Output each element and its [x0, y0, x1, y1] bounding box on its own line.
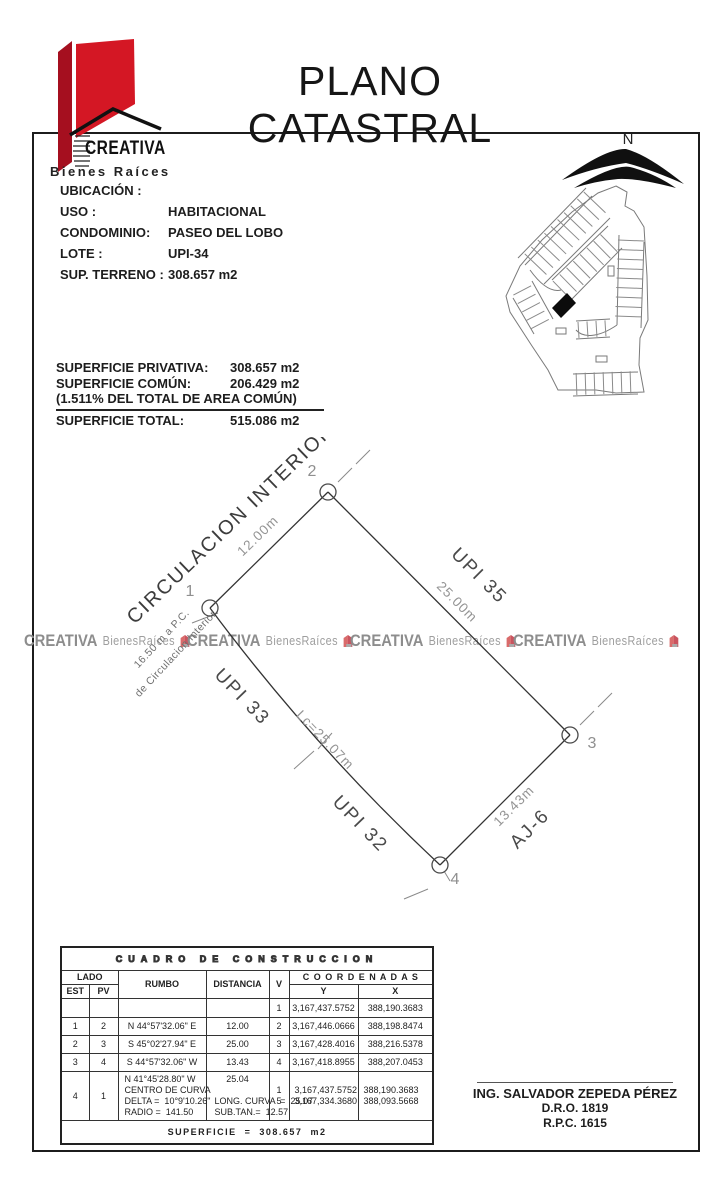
map-lot-ticks — [576, 382, 638, 384]
cell-x: 388,207.0453 — [358, 1054, 433, 1072]
dro-number: D.R.O. 1819 — [468, 1101, 682, 1116]
map-small-lot — [556, 328, 566, 334]
edge-1-2 — [210, 492, 328, 608]
leader-vertex-3 — [580, 693, 612, 725]
watermark-logo-icon — [668, 634, 678, 648]
map-strip-rails — [518, 188, 610, 284]
cell-y: 3,167,418.8955 — [289, 1054, 358, 1072]
property-info: UBICACIÓN : USO :HABITACIONAL CONDOMINIO… — [60, 183, 283, 282]
cell-distancia — [206, 999, 269, 1018]
field-label: USO : — [60, 204, 168, 219]
vertex-label-2: 2 — [308, 463, 317, 480]
cell-pv: 3 — [89, 1036, 118, 1054]
header-y: Y — [289, 985, 358, 999]
cell-y: 3,167,446.0666 — [289, 1018, 358, 1036]
field-label: CONDOMINIO: — [60, 225, 168, 240]
cell-distancia: 12.00 — [206, 1018, 269, 1036]
cell-rumbo: S 45°02'27.94" E — [118, 1036, 206, 1054]
cell-est — [61, 999, 89, 1018]
construction-table: CUADRO DE CONSTRUCCION LADO RUMBO DISTAN… — [60, 946, 434, 1145]
cell-rumbo — [118, 999, 206, 1018]
lot-plan-drawing: CIRCULACION INTERIOR 12.00m 2 1 UPI 35 2… — [128, 437, 640, 907]
cell-est: 2 — [61, 1036, 89, 1054]
watermark-brand: CREATIVA — [24, 631, 97, 651]
map-lot-ticks — [578, 328, 610, 330]
cell-pv — [89, 999, 118, 1018]
y-line: 3,167,437.5752 — [292, 1085, 356, 1096]
header-rumbo: RUMBO — [118, 971, 206, 999]
cell-est: 3 — [61, 1054, 89, 1072]
field-label: LOTE : — [60, 246, 168, 261]
surface-total-label: SUPERFICIE TOTAL: — [56, 413, 230, 429]
map-outer-boundary — [506, 186, 648, 393]
brand-tagline: Bienes Raíces — [50, 164, 171, 179]
cell-x: 388,190.3683 388,093.5668 — [358, 1072, 433, 1121]
north-label: N — [623, 131, 634, 148]
logo-left-panel — [58, 41, 72, 172]
map-highlighted-lot — [552, 293, 576, 318]
field-value: PASEO DEL LOBO — [168, 225, 283, 240]
table-curve-row: 4 1 N 41°45'28.80" W CENTRO DE CURVA DEL… — [61, 1072, 433, 1121]
table-row: 2 3 S 45°02'27.94" E 25.00 3 3,167,428.4… — [61, 1036, 433, 1054]
field-value — [168, 183, 283, 198]
surface-label: SUPERFICIE PRIVATIVA: — [56, 360, 230, 376]
x-line: 388,190.3683 — [361, 1085, 431, 1096]
edge-4-3 — [440, 735, 570, 865]
surface-summary: SUPERFICIE PRIVATIVA:308.657 m2 SUPERFIC… — [56, 360, 324, 428]
table-row: 3 4 S 44°57'32.06" W 13.43 4 3,167,418.8… — [61, 1054, 433, 1072]
header-v: V — [269, 971, 289, 999]
surface-note: (1.511% DEL TOTAL DE AREA COMÚN) — [56, 391, 324, 407]
logo-right-panel — [76, 39, 135, 138]
map-small-lot — [608, 266, 614, 276]
surface-value: 206.429 m2 — [230, 376, 324, 392]
subdivision-mini-map — [498, 180, 668, 400]
neighbor-upi32: UPI 32 — [328, 792, 392, 857]
rumbo-line: N 41°45'28.80" W — [121, 1074, 204, 1085]
cell-y: 3,167,428.4016 — [289, 1036, 358, 1054]
header-x: X — [358, 985, 433, 999]
map-small-lot — [596, 356, 607, 362]
signature-line — [477, 1082, 673, 1083]
field-value: 308.657 m2 — [168, 267, 283, 282]
table-footer-superficie: SUPERFICIE = 308.657 m2 — [61, 1121, 433, 1145]
rpc-number: R.P.C. 1615 — [468, 1116, 682, 1131]
cell-y: 3,167,437.5752 — [289, 999, 358, 1018]
field-value: UPI-34 — [168, 246, 283, 261]
cell-v: 2 — [269, 1018, 289, 1036]
cell-pv: 2 — [89, 1018, 118, 1036]
page-title: PLANO CATASTRAL — [170, 58, 570, 152]
x-line: 388,093.5668 — [361, 1096, 431, 1107]
neighbor-upi33: UPI 33 — [210, 665, 274, 730]
cell-rumbo: N 44°57'32.06" E — [118, 1018, 206, 1036]
surface-value: 308.657 m2 — [230, 360, 324, 376]
header-lado: LADO — [61, 971, 118, 985]
vertex-label-4: 4 — [451, 871, 460, 888]
field-label: SUP. TERRENO : — [60, 267, 168, 282]
cell-v: 1 — [269, 999, 289, 1018]
surface-label: SUPERFICIE COMÚN: — [56, 376, 230, 392]
signature-block: ING. SALVADOR ZEPEDA PÉREZ D.R.O. 1819 R… — [468, 1082, 682, 1131]
engineer-name: ING. SALVADOR ZEPEDA PÉREZ — [468, 1086, 682, 1101]
cell-x: 388,190.3683 — [358, 999, 433, 1018]
cell-pv: 4 — [89, 1054, 118, 1072]
table-title: CUADRO DE CONSTRUCCION — [61, 947, 433, 971]
cell-est: 1 — [61, 1018, 89, 1036]
cell-distancia: 25.00 — [206, 1036, 269, 1054]
dist-line: LONG. CURVA = 25.07 — [209, 1096, 267, 1107]
rumbo-line: DELTA = 10°9'10.26" — [121, 1096, 204, 1107]
table-row: 1 3,167,437.5752 388,190.3683 — [61, 999, 433, 1018]
cell-rumbo: S 44°57'32.06" W — [118, 1054, 206, 1072]
v-line: 1 — [272, 1085, 287, 1096]
cell-v: 4 — [269, 1054, 289, 1072]
header-distancia: DISTANCIA — [206, 971, 269, 999]
cell-pv: 1 — [89, 1072, 118, 1121]
dim-lc: Lc=25.07m — [293, 707, 357, 772]
map-lot-ticks — [522, 290, 542, 328]
field-value: HABITACIONAL — [168, 204, 283, 219]
rumbo-line: CENTRO DE CURVA — [121, 1085, 204, 1096]
table-row: 1 2 N 44°57'32.06" E 12.00 2 3,167,446.0… — [61, 1018, 433, 1036]
vertex-label-3: 3 — [588, 735, 597, 752]
vertex-label-1: 1 — [186, 583, 195, 600]
header-coordenadas: C O O R D E N A D A S — [289, 971, 433, 985]
surface-total-value: 515.086 m2 — [230, 413, 324, 429]
cell-est: 4 — [61, 1072, 89, 1121]
cell-distancia: 25.04 LONG. CURVA = 25.07 SUB.TAN.= 12.5… — [206, 1072, 269, 1121]
cell-x: 388,216.5378 — [358, 1036, 433, 1054]
map-lot-ticks — [628, 240, 631, 320]
cell-distancia: 13.43 — [206, 1054, 269, 1072]
edge-2-3 — [328, 492, 570, 735]
leader-vertex-4 — [404, 871, 450, 899]
header-est: EST — [61, 985, 89, 999]
dist-line: 25.04 — [209, 1074, 267, 1085]
cell-x: 388,198.8474 — [358, 1018, 433, 1036]
cell-v: 3 — [269, 1036, 289, 1054]
dist-line: SUB.TAN.= 12.57 — [209, 1107, 267, 1118]
rumbo-line: RADIO = 141.50 — [121, 1107, 204, 1118]
cell-rumbo: N 41°45'28.80" W CENTRO DE CURVA DELTA =… — [118, 1072, 206, 1121]
brand-name: CREATIVA — [85, 138, 166, 160]
leader-vertex-2 — [338, 450, 370, 482]
field-label: UBICACIÓN : — [60, 183, 168, 198]
header-pv: PV — [89, 985, 118, 999]
